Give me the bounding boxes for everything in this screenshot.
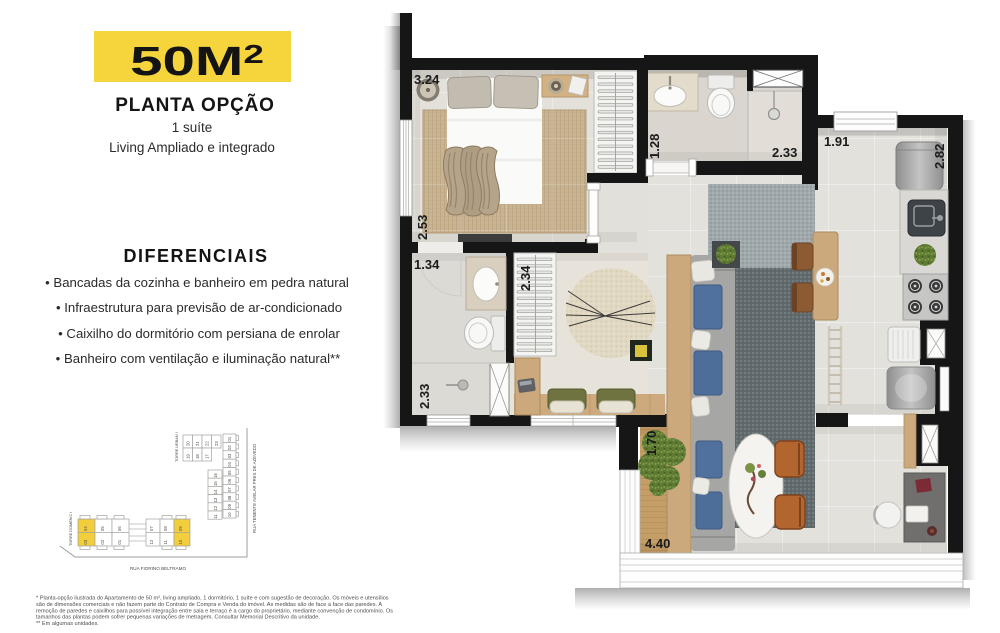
- svg-text:• Infraestrutura para previsão: • Infraestrutura para previsão de ar-con…: [56, 300, 342, 315]
- svg-text:1.34: 1.34: [414, 257, 440, 272]
- svg-text:TORRE URBAN I: TORRE URBAN I: [175, 432, 179, 462]
- svg-text:03: 03: [83, 539, 88, 544]
- svg-text:03: 03: [227, 453, 232, 458]
- svg-text:01: 01: [227, 436, 232, 441]
- svg-text:1.28: 1.28: [647, 134, 662, 159]
- svg-text:2.53: 2.53: [415, 215, 430, 240]
- svg-text:10: 10: [178, 539, 183, 544]
- svg-text:02: 02: [100, 539, 105, 544]
- svg-text:2.33: 2.33: [772, 145, 797, 160]
- svg-text:PLANTA OPÇÃO: PLANTA OPÇÃO: [115, 94, 275, 116]
- svg-text:RUA FIORINO BELTRAMO: RUA FIORINO BELTRAMO: [130, 566, 186, 571]
- svg-text:19: 19: [186, 454, 191, 459]
- svg-text:22: 22: [205, 441, 210, 446]
- svg-text:05: 05: [227, 470, 232, 475]
- svg-text:• Bancadas da cozinha e banhei: • Bancadas da cozinha e banheiro em pedr…: [45, 275, 349, 290]
- svg-text:remoção de paredes e caixilhos: remoção de paredes e caixilhos para poss…: [36, 608, 393, 614]
- svg-text:16: 16: [213, 472, 218, 477]
- svg-text:3.24: 3.24: [414, 72, 440, 87]
- svg-text:02: 02: [227, 445, 232, 450]
- svg-text:06: 06: [227, 478, 232, 483]
- svg-text:tamanhos das plantas podem sof: tamanhos das plantas podem sofrer pequen…: [36, 615, 320, 621]
- svg-text:20: 20: [186, 441, 191, 446]
- svg-text:1.91: 1.91: [824, 134, 849, 149]
- svg-text:15: 15: [213, 481, 218, 486]
- svg-text:11: 11: [163, 539, 168, 544]
- svg-text:• Banheiro com ventilação e il: • Banheiro com ventilação e iluminação n…: [56, 351, 341, 366]
- svg-text:04: 04: [83, 526, 88, 531]
- svg-text:4.40: 4.40: [645, 536, 670, 551]
- svg-text:DIFERENCIAIS: DIFERENCIAIS: [123, 246, 268, 266]
- svg-text:17: 17: [205, 454, 210, 459]
- svg-text:09: 09: [227, 503, 232, 508]
- svg-text:2.82: 2.82: [932, 144, 947, 169]
- svg-text:21: 21: [195, 441, 200, 446]
- svg-text:** Em algumas unidades.: ** Em algumas unidades.: [36, 621, 99, 627]
- svg-text:13: 13: [213, 497, 218, 502]
- svg-text:12: 12: [149, 539, 154, 544]
- svg-text:1.70: 1.70: [644, 431, 659, 456]
- svg-text:são de dimensões comerciais e: são de dimensões comerciais e não fazem …: [36, 602, 382, 608]
- svg-text:04: 04: [227, 461, 232, 466]
- svg-text:09: 09: [178, 526, 183, 531]
- svg-text:Living Ampliado e integrado: Living Ampliado e integrado: [109, 140, 275, 155]
- svg-text:2.33: 2.33: [417, 384, 432, 409]
- svg-text:* Planta-opção ilustrada do Ap: * Planta-opção ilustrada do Apartamento …: [36, 596, 389, 602]
- svg-text:07: 07: [227, 487, 232, 492]
- svg-text:06: 06: [117, 526, 122, 531]
- svg-text:11: 11: [213, 514, 218, 519]
- svg-text:07: 07: [149, 526, 154, 531]
- svg-text:18: 18: [195, 454, 200, 459]
- svg-text:10: 10: [227, 512, 232, 517]
- svg-text:RUA TENENTE AVELAR PRES DE AZE: RUA TENENTE AVELAR PRES DE AZEVEDO: [252, 443, 257, 533]
- svg-text:2.34: 2.34: [518, 265, 533, 291]
- svg-text:14: 14: [213, 489, 218, 494]
- svg-text:08: 08: [227, 495, 232, 500]
- svg-text:12: 12: [213, 505, 218, 510]
- svg-text:01: 01: [117, 539, 122, 544]
- svg-text:TORRE DOMENIC I: TORRE DOMENIC I: [69, 512, 73, 546]
- svg-text:• Caixilho do dormitório com p: • Caixilho do dormitório com persiana de…: [58, 326, 340, 341]
- svg-text:08: 08: [163, 526, 168, 531]
- svg-text:1 suíte: 1 suíte: [172, 120, 213, 135]
- svg-text:23: 23: [214, 441, 219, 446]
- svg-text:05: 05: [100, 526, 105, 531]
